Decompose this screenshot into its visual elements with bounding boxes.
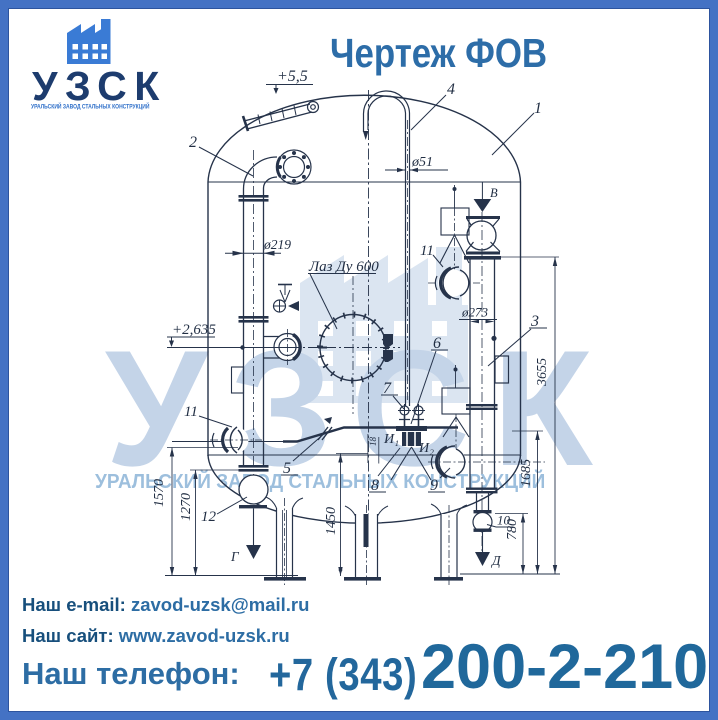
- svg-text:1570: 1570: [152, 479, 167, 507]
- svg-text:11: 11: [184, 404, 198, 420]
- svg-text:18: 18: [368, 437, 378, 447]
- svg-text:1: 1: [534, 100, 542, 117]
- svg-text:2: 2: [189, 134, 197, 151]
- svg-text:Лаз Ду 600: Лаз Ду 600: [308, 259, 379, 275]
- svg-text:И₁: И₁: [383, 432, 399, 447]
- svg-text:8: 8: [371, 477, 379, 494]
- svg-text:ø51: ø51: [411, 155, 433, 170]
- svg-text:12: 12: [201, 509, 217, 525]
- svg-text:6: 6: [433, 335, 441, 352]
- svg-text:ø219: ø219: [263, 237, 291, 252]
- svg-text:В: В: [490, 186, 498, 200]
- svg-text:1685: 1685: [519, 459, 534, 487]
- svg-text:5: 5: [283, 460, 291, 477]
- svg-text:ø273: ø273: [461, 305, 489, 320]
- svg-text:780: 780: [505, 519, 520, 540]
- svg-text:Д: Д: [490, 553, 502, 568]
- svg-text:11: 11: [420, 243, 434, 259]
- svg-text:1450: 1450: [324, 507, 339, 535]
- svg-text:И₂: И₂: [418, 441, 434, 456]
- svg-text:3: 3: [530, 313, 539, 330]
- svg-text:9: 9: [430, 477, 438, 494]
- svg-text:7: 7: [383, 380, 392, 397]
- svg-text:4: 4: [447, 81, 455, 98]
- svg-text:Г: Г: [230, 549, 240, 564]
- svg-text:1270: 1270: [179, 493, 194, 521]
- svg-text:3655: 3655: [535, 358, 550, 387]
- svg-text:+5,5: +5,5: [277, 68, 308, 85]
- svg-text:+2,635: +2,635: [172, 322, 216, 338]
